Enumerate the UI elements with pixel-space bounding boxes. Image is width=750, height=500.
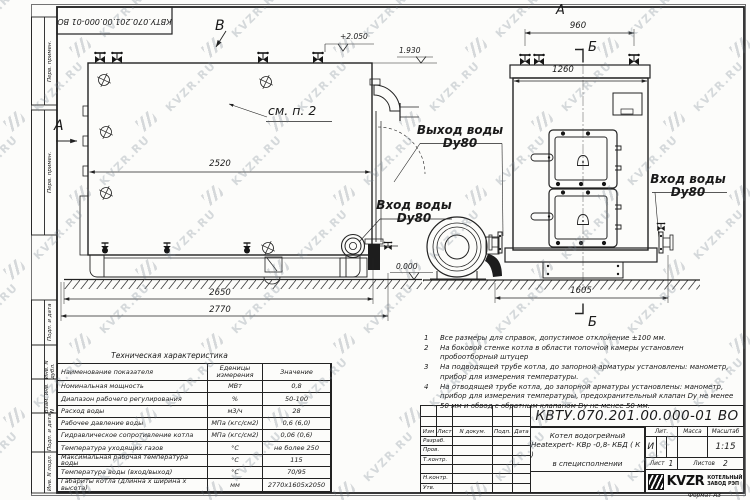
tech-row-name: Номинальная мощность bbox=[58, 381, 208, 393]
organization-cell: KVZR КОТЕЛЬНЫЙ ЗАВОД РЭП bbox=[646, 470, 744, 493]
front-view bbox=[423, 48, 700, 290]
org-name-line2: ЗАВОД РЭП bbox=[707, 482, 742, 488]
dim-base-length: 2650 bbox=[190, 289, 250, 298]
section-label-b-top: Б bbox=[588, 41, 597, 55]
tech-row-value: 50-100 bbox=[263, 393, 331, 405]
row-tkontr: Т.контр. bbox=[421, 456, 453, 465]
tech-row-units: °С bbox=[208, 442, 263, 454]
dim-top-width: 1260 bbox=[543, 66, 583, 75]
title-block: КВТУ.070.201.00.000-01 ВО Изм Лист N док… bbox=[420, 405, 744, 493]
tech-row-units: % bbox=[208, 393, 263, 405]
note-number: 1 bbox=[424, 334, 440, 344]
dim-front-base: 1605 bbox=[556, 287, 606, 296]
org-name: КОТЕЛЬНЫЙ ЗАВОД РЭП bbox=[707, 476, 742, 487]
kvzr-logo-text: KVZR bbox=[667, 474, 705, 489]
note-item: 2 На боковой стенке котла в области топо… bbox=[424, 344, 740, 363]
product-line3: в специсполнении bbox=[553, 459, 623, 469]
col-podp: Подп. bbox=[493, 427, 513, 437]
water-outlet-label: Выход воды Dy80 bbox=[418, 124, 502, 150]
note-text: На боковой стенке котла в области топочн… bbox=[440, 344, 740, 363]
sheet-label: Лист bbox=[650, 461, 665, 467]
note-item: 1 Все размеры для справок, допустимое от… bbox=[424, 334, 740, 344]
note-text: Все размеры для справок, допустимое откл… bbox=[440, 334, 740, 344]
row-prov: Пров. bbox=[421, 446, 453, 455]
tech-row-units: МПа (кгс/см2) bbox=[208, 418, 263, 430]
margin-stamp-podp2: Подп. и дата bbox=[43, 413, 57, 452]
note-item: 3 На подводящей трубе котла, до запорной… bbox=[424, 363, 740, 382]
product-line2: Heatexpert- КВр -0,8- КБД ( К ) bbox=[531, 440, 644, 459]
margin-stamp-podp1: Подп. и дата bbox=[43, 300, 57, 345]
water-inlet-front-dn: Dy80 bbox=[671, 186, 705, 199]
elevation-zero: 0.000 bbox=[396, 263, 417, 271]
col-izm: Изм bbox=[421, 427, 437, 437]
title-block-right: Лит. Масса Масштаб И 1:15 Лист 1 Листов … bbox=[645, 427, 744, 493]
tech-col-header-units: Еденицы измерения bbox=[208, 364, 263, 381]
col-list: Лист bbox=[437, 427, 453, 437]
sheet-cell: Лист 1 bbox=[646, 458, 678, 470]
dim-valve-spacing: 960 bbox=[558, 22, 598, 31]
revision-grid bbox=[420, 405, 530, 427]
sheets-total-value: 2 bbox=[723, 459, 728, 468]
tech-row-name: Температура уходящих газов bbox=[58, 442, 208, 454]
tech-col-header-value: Значение bbox=[263, 364, 331, 381]
margin-stamp-inv-dubl: Инв. N дубл. bbox=[43, 345, 57, 379]
tech-col-header-name: Наименование показателя bbox=[58, 364, 208, 381]
signature-grid: Изм Лист N докум. Подп. Дата Разраб. Про… bbox=[420, 427, 530, 493]
tech-row-units: °С bbox=[208, 455, 263, 467]
dim-shell-length: 2520 bbox=[190, 160, 250, 169]
tech-row-value: 115 bbox=[263, 455, 331, 467]
product-line1: Котел водогрейный bbox=[550, 431, 625, 441]
title-block-doc-number: КВТУ.070.201.00.000-01 ВО bbox=[530, 405, 744, 427]
tech-row-name: Температура воды (вход/выход) bbox=[58, 467, 208, 479]
mass-label: Масса bbox=[678, 427, 708, 437]
tech-row-value: 2770х1605х2050 bbox=[263, 479, 331, 491]
mass-value bbox=[678, 437, 708, 458]
format-label: Формат А3 bbox=[688, 493, 721, 499]
elevation-top: +2.050 bbox=[340, 33, 368, 41]
drawing-sheet: КВТУ.070.201.00.000-01 ВО Перв. примен. … bbox=[0, 0, 750, 500]
row-razrab: Разраб. bbox=[421, 437, 453, 446]
section-label-b-bottom: Б bbox=[588, 316, 597, 330]
dim-overall-length: 2770 bbox=[190, 306, 250, 315]
water-outlet-dn: Dy80 bbox=[443, 137, 477, 150]
tech-row-value: 0,06 (0,6) bbox=[263, 430, 331, 442]
sheet-value: 1 bbox=[668, 459, 673, 468]
lit-value: И bbox=[646, 437, 657, 458]
tech-row-units: МПа (кгс/см2) bbox=[208, 430, 263, 442]
margin-stamp-inv-podl: Инв. N подл. bbox=[43, 452, 57, 493]
tech-row-name: Максимальная рабочая температура воды bbox=[58, 455, 208, 467]
view-label-a-front: А bbox=[556, 4, 565, 18]
tech-row-value: 0,8 bbox=[263, 381, 331, 393]
margin-stamp-vzam: Взам. инв. N bbox=[43, 379, 57, 413]
col-date: Дата bbox=[513, 427, 531, 437]
product-name-box: Котел водогрейный Heatexpert- КВр -0,8- … bbox=[530, 427, 645, 493]
tech-row-units: °С bbox=[208, 467, 263, 479]
tech-row-name: Рабочее давление воды bbox=[58, 418, 208, 430]
note-number: 2 bbox=[424, 344, 440, 363]
sheets-total-label: Листов bbox=[693, 461, 715, 467]
scale-value: 1:15 bbox=[708, 437, 743, 458]
tech-row-name: Расход воды bbox=[58, 406, 208, 418]
notes-list: 1 Все размеры для справок, допустимое от… bbox=[424, 334, 740, 412]
scale-label: Масштаб bbox=[708, 427, 743, 437]
tech-row-units: МВт bbox=[208, 381, 263, 393]
doc-number-stamp: КВТУ.070.201.00.000-01 ВО bbox=[57, 7, 172, 34]
tech-row-value: не более 250 bbox=[263, 442, 331, 454]
side-view bbox=[64, 52, 425, 289]
row-utv: Утв. bbox=[421, 484, 453, 493]
tech-table-title: Техническая характеристика bbox=[57, 352, 282, 360]
tech-row-name: Габариты котла (длинна х ширина х высота… bbox=[58, 479, 208, 491]
water-inlet-label-side: Вход воды Dy80 bbox=[374, 199, 454, 225]
note-number: 3 bbox=[424, 363, 440, 382]
note-text: На подводящей трубе котла, до запорной а… bbox=[440, 363, 740, 382]
margin-stamp-perv1: Перв. примен. bbox=[43, 17, 57, 105]
water-inlet-dn: Dy80 bbox=[397, 212, 431, 225]
row-nkontr: Н.контр. bbox=[421, 474, 453, 483]
elevation-shell: 1.930 bbox=[399, 47, 420, 55]
water-inlet-label-front: Вход воды Dy80 bbox=[648, 173, 728, 199]
tech-row-name: Гидравлическое сопротивление котла bbox=[58, 430, 208, 442]
side-view-annotations bbox=[56, 31, 452, 321]
view-label-v: В bbox=[215, 19, 225, 34]
lit-label: Лит. bbox=[646, 427, 678, 437]
tech-row-units: м3/ч bbox=[208, 406, 263, 418]
tech-row-value: 0,6 (6,0) bbox=[263, 418, 331, 430]
kvzr-logo-icon bbox=[648, 474, 664, 490]
tech-row-value: 70/95 bbox=[263, 467, 331, 479]
tech-row-name: Диапазон рабочего регулирования bbox=[58, 393, 208, 405]
tech-row-units: мм bbox=[208, 479, 263, 491]
tech-table: Наименование показателя Еденицы измерени… bbox=[57, 363, 332, 493]
tech-row-value: 28 bbox=[263, 406, 331, 418]
note-reference: см. п. 2 bbox=[268, 104, 316, 118]
col-doc: N докум. bbox=[453, 427, 493, 437]
section-label-a-side: А bbox=[54, 119, 64, 134]
sheets-total-cell: Листов 2 bbox=[678, 458, 743, 470]
